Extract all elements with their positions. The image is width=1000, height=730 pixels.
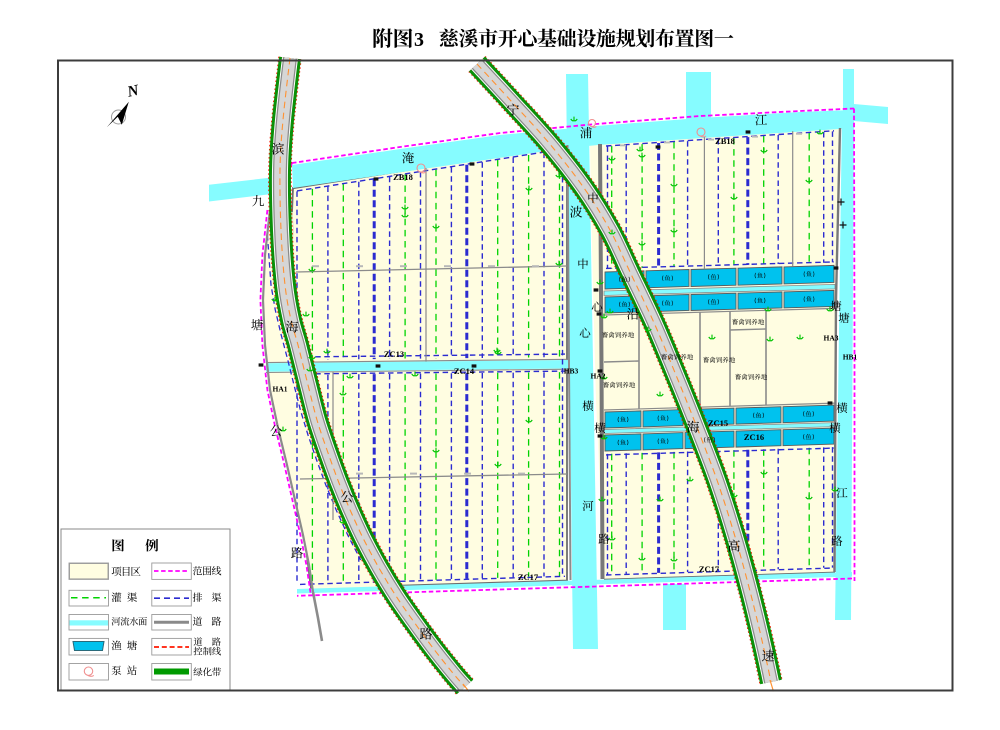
svg-text:ZC15: ZC15 (708, 418, 728, 428)
svg-text:ZB18: ZB18 (715, 136, 735, 146)
svg-text:HA2: HA2 (591, 372, 606, 381)
svg-text:3: 3 (414, 29, 424, 51)
svg-text:HB1: HB1 (843, 353, 858, 362)
svg-text:HA1: HA1 (273, 385, 288, 394)
svg-text:ZB18: ZB18 (393, 172, 413, 182)
svg-text:HB3: HB3 (564, 367, 579, 376)
svg-text:HA3: HA3 (824, 334, 839, 343)
svg-text:ZC14: ZC14 (454, 366, 475, 376)
svg-text:ZC17: ZC17 (699, 564, 720, 574)
svg-text:ZC13: ZC13 (384, 349, 404, 359)
svg-text:ZC17: ZC17 (518, 572, 539, 582)
svg-text:ZC16: ZC16 (744, 432, 764, 442)
